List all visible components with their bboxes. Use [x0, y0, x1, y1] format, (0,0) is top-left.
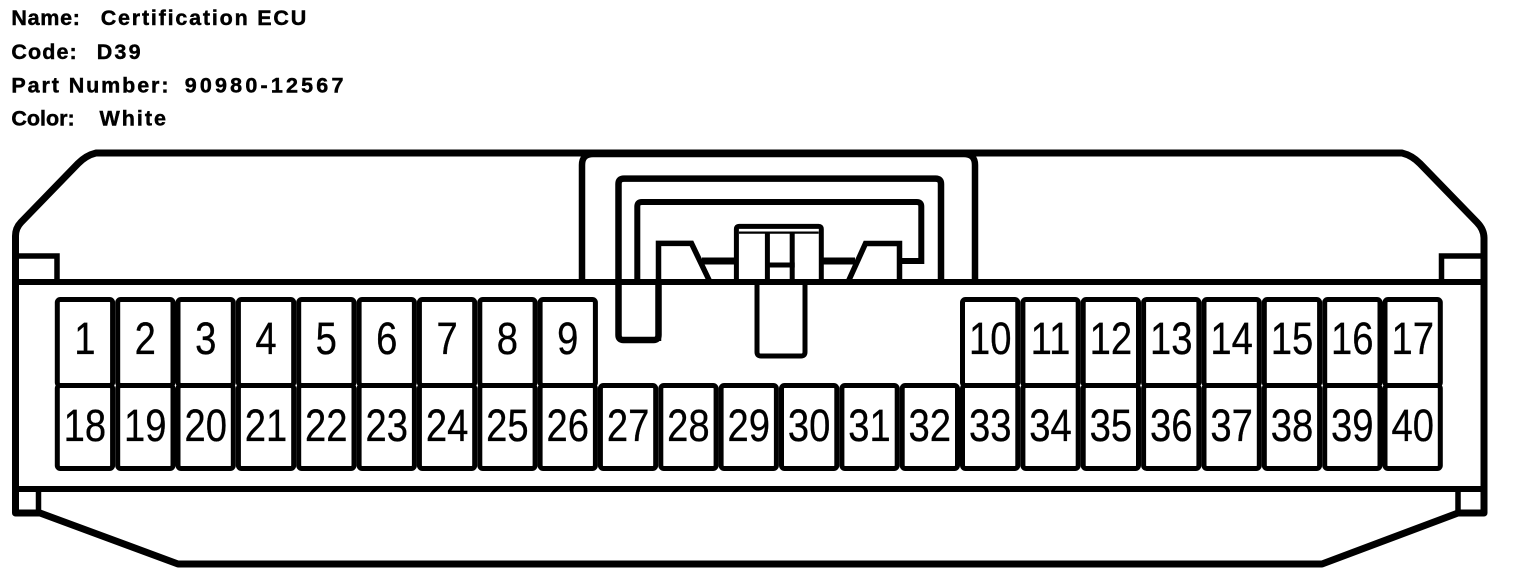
svg-text:38: 38: [1271, 400, 1313, 451]
svg-text:27: 27: [607, 400, 649, 451]
svg-text:19: 19: [124, 400, 166, 451]
svg-text:40: 40: [1391, 400, 1433, 451]
svg-text:4: 4: [255, 313, 276, 364]
svg-text:23: 23: [365, 400, 407, 451]
svg-text:39: 39: [1331, 400, 1373, 451]
svg-text:29: 29: [728, 400, 770, 451]
svg-text:30: 30: [788, 400, 830, 451]
svg-text:25: 25: [486, 400, 528, 451]
svg-text:36: 36: [1150, 400, 1192, 451]
svg-text:Name:Certification ECU: Name:Certification ECU: [11, 6, 308, 30]
svg-text:32: 32: [909, 400, 951, 451]
svg-text:28: 28: [667, 400, 709, 451]
svg-text:6: 6: [376, 313, 397, 364]
svg-text:17: 17: [1391, 313, 1433, 364]
svg-text:9: 9: [557, 313, 578, 364]
svg-text:2: 2: [135, 313, 156, 364]
svg-text:24: 24: [426, 400, 468, 451]
svg-text:8: 8: [497, 313, 518, 364]
svg-text:22: 22: [305, 400, 347, 451]
svg-text:26: 26: [547, 400, 589, 451]
svg-text:21: 21: [245, 400, 287, 451]
svg-text:Code:D39: Code:D39: [11, 40, 142, 64]
svg-text:18: 18: [64, 400, 106, 451]
svg-text:11: 11: [1031, 313, 1071, 364]
svg-text:5: 5: [316, 313, 337, 364]
svg-text:20: 20: [184, 400, 226, 451]
svg-text:34: 34: [1029, 400, 1071, 451]
svg-text:12: 12: [1090, 313, 1132, 364]
svg-text:33: 33: [969, 400, 1011, 451]
svg-text:37: 37: [1210, 400, 1252, 451]
svg-text:31: 31: [848, 400, 890, 451]
svg-text:7: 7: [436, 313, 457, 364]
svg-text:16: 16: [1331, 313, 1373, 364]
svg-text:1: 1: [74, 313, 95, 364]
svg-text:10: 10: [969, 313, 1011, 364]
svg-text:13: 13: [1150, 313, 1192, 364]
svg-text:15: 15: [1271, 313, 1313, 364]
svg-text:14: 14: [1210, 313, 1252, 364]
svg-text:35: 35: [1090, 400, 1132, 451]
svg-text:3: 3: [195, 313, 216, 364]
